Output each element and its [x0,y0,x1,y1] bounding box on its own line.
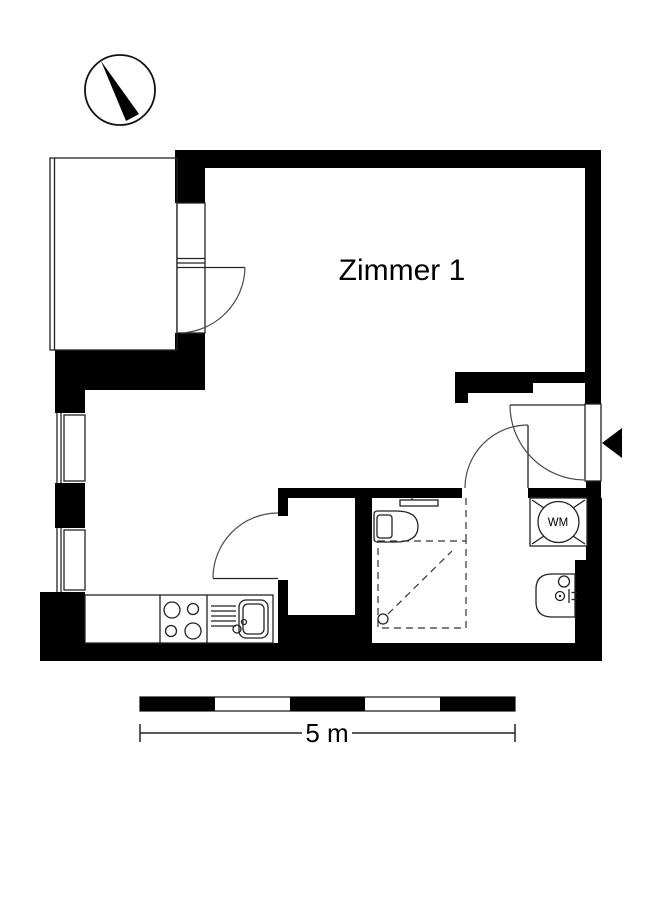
compass-needle [101,61,139,121]
scale-label: 5 m [305,718,348,748]
window-frame [64,530,85,590]
balcony [50,158,177,350]
bathroom: WM [374,497,587,628]
wall-segment [175,333,205,350]
floor-plan: WM Zimmer 1 5 m [0,0,672,910]
shower-tray [378,541,466,628]
washbasin [536,574,577,617]
wall-segment [455,372,585,383]
wall-segment [455,372,468,403]
entrance-door [510,404,622,481]
wall-segment [55,483,85,528]
wall-segment [278,488,462,498]
closet-door [213,513,278,579]
wall-segment [528,488,587,498]
window-2 [57,528,85,592]
bathroom-door [465,425,528,488]
window-frame [64,415,85,481]
wall-segment [175,150,205,203]
wall-shelf [400,497,438,506]
door-swing-arc [213,513,278,578]
scale-bar-segment [440,697,515,711]
door-swing-arc [510,405,584,480]
scale-bar-segment [140,697,215,711]
wall-segment [175,150,600,168]
wall-segment [55,350,205,390]
window-1 [57,413,85,483]
wall-segment [288,615,355,643]
toilet [374,511,418,542]
wall-segment [40,592,85,643]
washing-machine-label: WM [548,517,568,529]
shelf [400,500,438,506]
wall-segment [585,150,601,405]
wall-segment [355,498,372,643]
wall-segment [278,580,288,643]
wall-segment [586,498,602,560]
scale-bar-segment [290,697,365,711]
room-label: Zimmer 1 [339,254,466,287]
entrance-door-frame [585,404,601,481]
scale-bar: 5 m [140,697,515,748]
washing-machine: WM [530,498,587,546]
shower-diagonal [388,551,452,614]
wall-segment [40,643,602,661]
kitchen-counter [85,595,273,643]
door-swing-arc [465,425,528,488]
balcony-door [177,203,245,333]
shower-head [378,614,388,624]
north-compass-icon [85,55,155,125]
wall-segment [586,480,601,498]
washbasin-faucet-dot [559,595,561,597]
entrance-arrow-icon [602,428,622,458]
balcony-outline [50,158,177,350]
wall-segment [55,390,85,413]
